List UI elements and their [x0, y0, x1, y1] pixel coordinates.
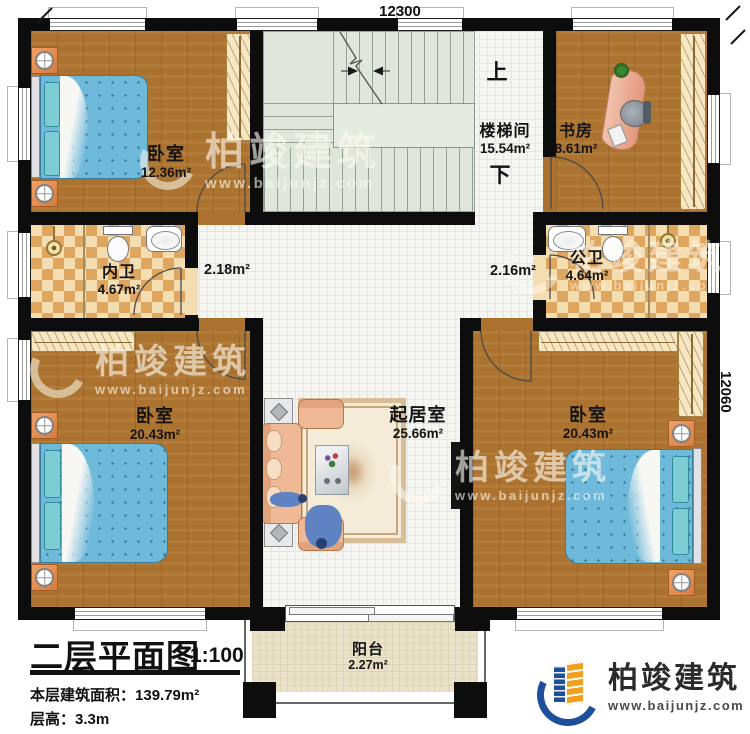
- wall-stair-bottom: [250, 212, 475, 225]
- pillow: [672, 508, 689, 555]
- lamp-icon: [35, 416, 54, 435]
- wardrobe: [538, 331, 678, 352]
- window: [50, 18, 145, 31]
- sliding-door-panel: [368, 614, 454, 622]
- company-website: www.baijunjz.com: [608, 698, 744, 713]
- nightstand: [31, 180, 58, 207]
- plan-scale: 1:100: [190, 644, 244, 668]
- stair-treads-upper: [333, 32, 474, 103]
- stair-treads-left: [264, 103, 333, 148]
- lamp-icon: [672, 424, 691, 443]
- sofa-cushion: [266, 458, 282, 480]
- window-sill: [719, 241, 731, 295]
- dimension-tick: [726, 6, 740, 20]
- pillow: [44, 82, 60, 127]
- dimension-right: 12060: [717, 371, 734, 413]
- room-label-bath-inner: 内卫 4.67m²: [98, 264, 141, 298]
- pillow: [44, 131, 60, 176]
- bed-headboard: [693, 448, 702, 564]
- toilet-bowl: [107, 236, 129, 262]
- wall-bed2-right: [250, 318, 263, 607]
- flower-vase-icon: [320, 450, 342, 470]
- wardrobe: [31, 331, 135, 352]
- balcony-pillar-left: [243, 682, 276, 718]
- table-cup: [324, 478, 330, 484]
- plant-icon: [614, 63, 629, 78]
- shower-cord: [53, 226, 55, 241]
- floor-area-value: 139.79m²: [135, 687, 199, 704]
- shower-divider: [83, 225, 85, 318]
- shower-head-icon: [660, 233, 676, 249]
- nightstand: [31, 412, 58, 439]
- window-sill: [515, 619, 664, 631]
- door-gap-study: [543, 157, 556, 212]
- window-sill: [719, 93, 731, 165]
- floor-plan: 柏竣建筑 www.baijunjz.com 柏竣建筑 www.baijunjz.…: [0, 0, 750, 734]
- window: [707, 95, 720, 163]
- company-logo-icon: [536, 658, 598, 718]
- table-lamp-icon: [269, 524, 287, 542]
- floor-height-label: 层高：: [30, 711, 75, 728]
- sink-basin: [151, 231, 180, 250]
- bed-headboard: [31, 76, 40, 178]
- pillow: [672, 456, 689, 503]
- stair-down-label: 下: [490, 159, 511, 189]
- stair-landing: [333, 103, 475, 148]
- shower-divider: [648, 225, 650, 318]
- lamp-icon: [35, 568, 54, 587]
- room-label-stairwell: 楼梯间 15.54m²: [479, 123, 530, 157]
- lamp-icon: [672, 573, 691, 592]
- table-lamp-icon: [269, 403, 287, 421]
- room-label-balcony: 阳台 2.27m²: [348, 641, 388, 673]
- nightstand: [31, 47, 58, 74]
- title-underline: [30, 670, 240, 675]
- person-head: [316, 538, 327, 549]
- shower-head-icon: [46, 240, 62, 256]
- sofa-cushion: [266, 430, 282, 452]
- window: [18, 233, 31, 297]
- window: [517, 607, 662, 620]
- floor-height-line: 层高：3.3m: [30, 708, 109, 729]
- window: [18, 340, 31, 400]
- window: [75, 607, 205, 620]
- toilet-tank: [103, 226, 133, 235]
- wardrobe: [226, 33, 252, 141]
- toilet-tank: [598, 226, 628, 235]
- door-gap-bedroom2: [199, 318, 245, 331]
- pillow: [44, 450, 61, 498]
- pier-balcony-left: [250, 607, 285, 631]
- wall-bed3-left: [460, 318, 473, 607]
- window: [18, 88, 31, 160]
- nightstand: [668, 569, 695, 596]
- room-label-living: 起居室 25.66m²: [390, 405, 447, 441]
- room-label-bedroom-top-left: 卧室 12.36m²: [141, 144, 191, 180]
- window: [707, 243, 720, 293]
- sliding-door-panel: [289, 607, 375, 615]
- balcony-pillar-right: [454, 682, 487, 718]
- company-logo: 柏竣建筑 www.baijunjz.com: [536, 658, 744, 718]
- nightstand: [668, 420, 695, 447]
- dimension-tick: [731, 30, 745, 44]
- person-head: [298, 494, 307, 503]
- door-gap-bath-inner: [185, 268, 198, 315]
- sofa-loveseat: [298, 399, 344, 429]
- window: [573, 18, 672, 31]
- hall-area-right: 2.16m²: [490, 263, 536, 279]
- sink: [146, 226, 182, 252]
- dimension-top: 12300: [379, 3, 421, 20]
- wall-study-bottom: [533, 212, 720, 225]
- lamp-icon: [35, 184, 54, 203]
- door-gap-bedroom3: [481, 318, 533, 331]
- hall-area-left: 2.18m²: [204, 262, 250, 278]
- bed-headboard: [31, 443, 40, 563]
- room-label-bedroom-bottom-left: 卧室 20.43m²: [130, 406, 180, 442]
- stair-treads-lower: [264, 148, 474, 211]
- pier-balcony-right: [455, 607, 490, 631]
- floor-area-label: 本层建筑面积：: [30, 687, 135, 704]
- company-name: 柏竣建筑: [608, 664, 744, 694]
- nightstand: [31, 564, 58, 591]
- sink: [548, 226, 586, 252]
- floor-height-value: 3.3m: [75, 711, 109, 728]
- room-label-study: 书房 8.61m²: [555, 123, 598, 157]
- floor-area-line: 本层建筑面积：139.79m²: [30, 684, 199, 705]
- pillow: [44, 502, 61, 550]
- door-gap-bedroom1: [198, 212, 245, 225]
- room-label-bedroom-bottom-right: 卧室 20.43m²: [563, 405, 613, 441]
- window: [237, 18, 317, 31]
- side-table: [264, 398, 293, 426]
- wardrobe: [680, 33, 706, 210]
- stair-up-label: 上: [487, 56, 508, 86]
- balcony-sliding-door: [285, 605, 455, 622]
- room-label-bath-public: 公卫 4.64m²: [566, 250, 609, 284]
- wardrobe: [678, 331, 704, 417]
- sink-basin: [553, 231, 584, 250]
- wall-bed1-stair: [250, 18, 263, 225]
- lamp-icon: [35, 51, 54, 70]
- chair-back: [643, 101, 651, 124]
- table-cup: [335, 478, 341, 484]
